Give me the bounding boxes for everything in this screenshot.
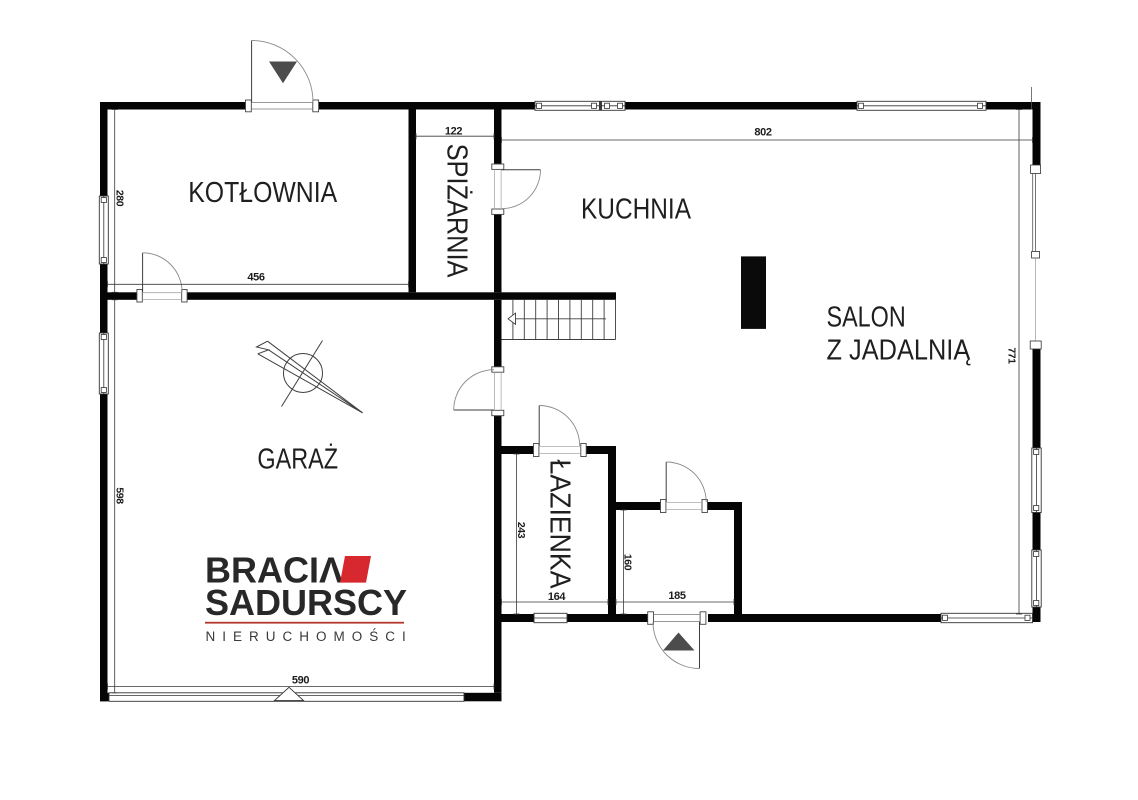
svg-text:122: 122 — [445, 126, 462, 138]
svg-text:590: 590 — [292, 675, 309, 687]
svg-text:160: 160 — [621, 554, 633, 571]
svg-text:598: 598 — [113, 487, 125, 504]
svg-text:SALON: SALON — [827, 300, 906, 333]
svg-text:771: 771 — [1005, 347, 1017, 364]
svg-text:802: 802 — [754, 127, 771, 139]
svg-text:243: 243 — [515, 522, 527, 539]
svg-text:NIERUCHOMOŚCI: NIERUCHOMOŚCI — [206, 629, 413, 644]
svg-text:KOTŁOWNIA: KOTŁOWNIA — [188, 176, 337, 208]
svg-text:Z JADALNIĄ: Z JADALNIĄ — [827, 333, 972, 366]
svg-text:KUCHNIA: KUCHNIA — [581, 193, 691, 225]
svg-text:SADURSCY: SADURSCY — [205, 582, 407, 623]
svg-text:164: 164 — [548, 591, 566, 603]
svg-text:280: 280 — [114, 190, 126, 207]
svg-text:185: 185 — [668, 590, 685, 602]
svg-text:456: 456 — [247, 272, 264, 284]
svg-text:GARAŻ: GARAŻ — [257, 442, 338, 475]
svg-text:ŁAZIENKA: ŁAZIENKA — [544, 460, 576, 589]
svg-text:SPIŻARNIA: SPIŻARNIA — [441, 144, 474, 279]
